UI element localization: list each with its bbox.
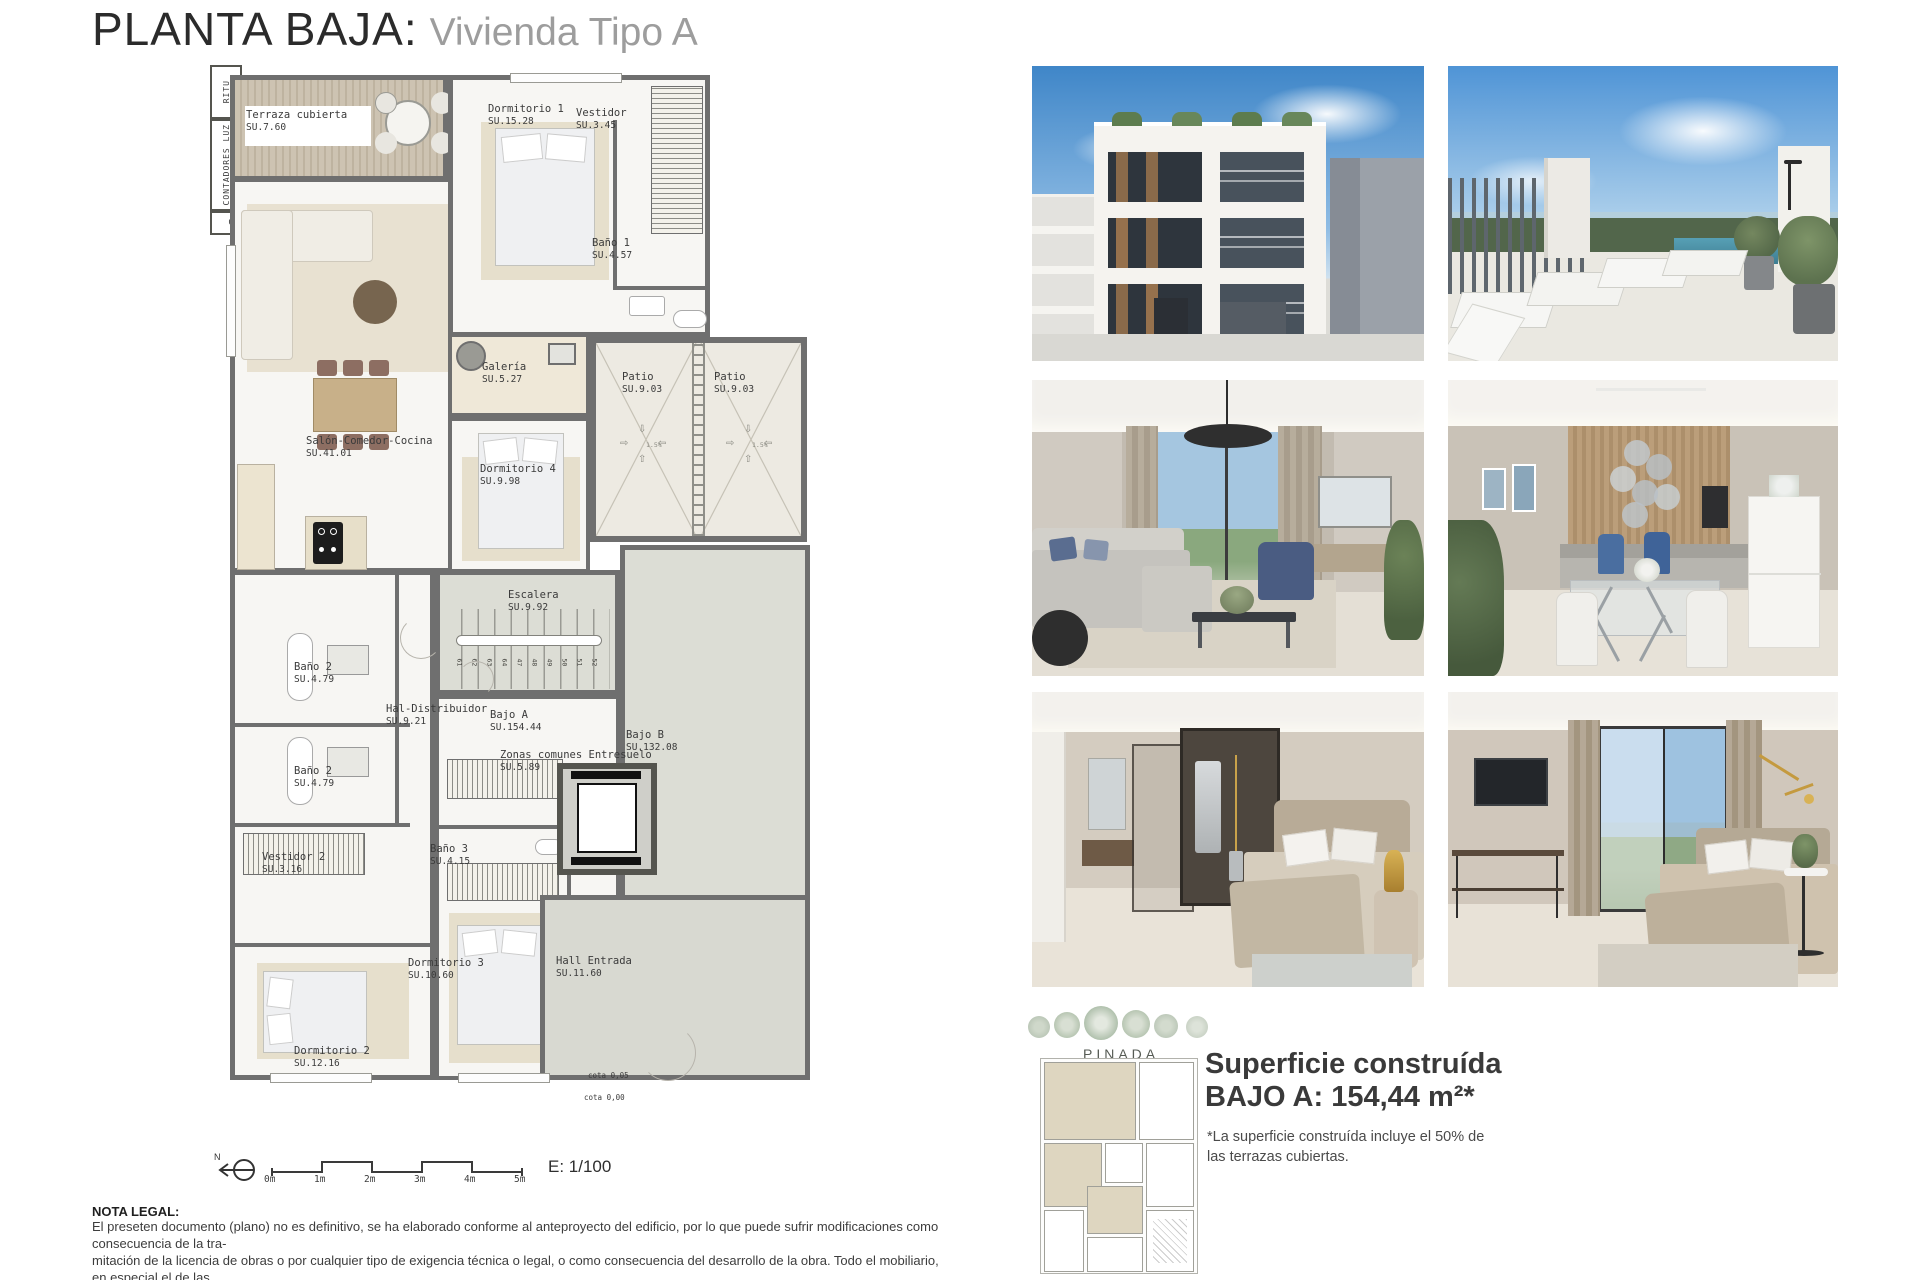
garage-door	[1220, 302, 1286, 338]
blue-armchair	[1258, 542, 1314, 600]
surface-heading: Superficie construída BAJO A: 154,44 m²*	[1205, 1048, 1502, 1115]
orchid	[1769, 475, 1799, 497]
room-label: Zonas comunes EntresueloSU.5.89	[500, 749, 652, 773]
scale-tick: 4m	[464, 1174, 475, 1185]
artwork	[1482, 468, 1506, 510]
room-label: Salón-Comedor-CocinaSU.41.01	[306, 435, 432, 459]
door	[1032, 732, 1066, 942]
console-shelf	[1452, 888, 1564, 891]
pillow	[1330, 828, 1377, 864]
plant	[1792, 834, 1818, 868]
surface-footnote: *La superficie construída incluye el 50%…	[1207, 1128, 1484, 1167]
hanging-clothes	[1195, 761, 1221, 853]
sun-lounger	[1662, 250, 1748, 276]
dorm3-bed	[457, 925, 545, 1045]
side-table	[1032, 610, 1088, 666]
room-label: Hall EntradaSU.11.60	[556, 955, 632, 979]
slope-arrow-icon: ⇩	[638, 425, 646, 435]
slope-arrow-icon: ⇧	[638, 455, 646, 465]
bathroom-mirror	[1088, 758, 1126, 830]
room-label: EscaleraSU.9.92	[508, 589, 559, 613]
street	[1032, 334, 1424, 361]
white-chair	[1686, 590, 1728, 668]
elevator-cab	[577, 783, 637, 853]
stair-handrail	[456, 635, 602, 646]
sheer-curtain	[1601, 729, 1663, 909]
window	[510, 73, 622, 83]
shower-head	[1784, 160, 1802, 164]
pinada-logo-ornament	[1028, 1004, 1218, 1044]
plan-patio-block: ⇩ ⇨ ⇦ ⇧ 1.5% ⇩ ⇨ ⇦ ⇧ 1.5%	[590, 337, 807, 542]
console-top	[1452, 850, 1564, 856]
window	[226, 245, 236, 357]
legal-heading: NOTA LEGAL:	[92, 1204, 942, 1219]
side-table-leg	[1802, 876, 1805, 952]
plant	[1778, 216, 1838, 286]
pendant-cord	[1226, 380, 1228, 430]
room-label: Terraza cubiertaSU.7.60	[246, 109, 347, 133]
room-label: Baño 2SU.4.79	[294, 765, 334, 789]
bano1-tub	[673, 310, 707, 328]
cota-high: cota 0,05	[588, 1071, 629, 1080]
room-label: PatioSU.9.03	[622, 371, 662, 395]
monstera-plant	[1448, 520, 1504, 676]
plant	[1384, 520, 1424, 640]
legal-line: mitación de la licencia de obras o por c…	[92, 1253, 942, 1280]
wall-tv	[1474, 758, 1548, 806]
chandelier	[1624, 440, 1650, 466]
bano1-sink	[629, 296, 665, 316]
pendant-lamp	[1184, 424, 1272, 448]
orchid-centerpiece	[1634, 558, 1660, 582]
chimney	[1544, 158, 1590, 258]
room-label: Dormitorio 4SU.9.98	[480, 463, 556, 487]
photo-dining-kitchen	[1448, 380, 1838, 676]
photo-building-facade	[1032, 66, 1424, 361]
main-building	[1094, 122, 1326, 334]
room-label: Vestidor 2SU.3.16	[262, 851, 325, 875]
scale-bar: N 0m 1m 2m 3m 4m 5m E: 1/100	[214, 1156, 634, 1196]
surface-line1: Superficie construída	[1205, 1048, 1502, 1081]
dining-table	[313, 378, 397, 432]
coffee-table	[353, 280, 397, 324]
scale-ratio: E: 1/100	[548, 1157, 611, 1177]
room-label: VestidorSU.3.45	[576, 107, 627, 131]
patio-slope-label: 1.5%	[752, 441, 768, 449]
console-legs	[1456, 856, 1458, 918]
blue-pillow	[1083, 539, 1109, 561]
photo-living-room	[1032, 380, 1424, 676]
ceiling	[1448, 692, 1838, 730]
patio-slope-label: 1.5%	[646, 441, 662, 449]
room-label: Dormitorio 3SU.10.60	[408, 957, 484, 981]
door-arc	[458, 661, 494, 697]
photo-rooftop-terrace-pool	[1448, 66, 1838, 361]
cota-low: cota 0,00	[584, 1093, 625, 1102]
cooktop	[313, 522, 343, 564]
room-label: Baño 1SU.4.57	[592, 237, 632, 261]
planter-pot	[1793, 284, 1835, 334]
room-label: Dormitorio 2SU.12.16	[294, 1045, 370, 1069]
coffee-table-legs	[1198, 622, 1202, 648]
rug	[1252, 954, 1412, 987]
room-label: Dormitorio 1SU.15.28	[488, 103, 564, 127]
floor-plan: ⇩ ⇨ ⇦ ⇧ 1.5% ⇩ ⇨ ⇦ ⇧ 1.5%	[210, 65, 810, 1110]
vestidor-wardrobe	[651, 86, 703, 234]
photo-bedroom-dressing	[1032, 692, 1424, 987]
gold-pendant	[1235, 755, 1237, 865]
neighbor-building-left	[1032, 194, 1098, 334]
north-compass-icon	[218, 1156, 262, 1186]
white-chair	[1556, 592, 1598, 666]
oven	[1702, 486, 1728, 528]
mirror	[1318, 476, 1392, 528]
dorm4-bed	[478, 433, 564, 549]
ceiling	[1032, 692, 1424, 732]
dorm2-bed	[263, 971, 367, 1053]
ceiling	[1448, 380, 1838, 426]
galeria-sink	[548, 343, 576, 365]
pillow	[1282, 829, 1330, 867]
slope-arrow-icon: ⇧	[744, 455, 752, 465]
photo-bedroom-window	[1448, 692, 1838, 987]
window-right-column	[1220, 152, 1304, 202]
surface-line2: BAJO A: 154,44 m²*	[1205, 1081, 1502, 1114]
mini-plan-thumbnail	[1040, 1058, 1198, 1274]
blue-chair	[1598, 534, 1624, 574]
brochure-page: PLANTA BAJA:Vivienda Tipo A	[0, 0, 1920, 1280]
slope-arrow-icon: ⇩	[744, 425, 752, 435]
page-title: PLANTA BAJA:Vivienda Tipo A	[92, 2, 698, 56]
room-label: Baño 2SU.4.79	[294, 661, 334, 685]
room-label: Baño 3SU.4.15	[430, 843, 470, 867]
roof-plants	[1112, 112, 1142, 126]
window	[270, 1073, 372, 1083]
room-label: Bajo ASU.154.44	[490, 709, 541, 733]
scale-tick: 0m	[264, 1174, 275, 1185]
scale-tick: 2m	[364, 1174, 375, 1185]
side-table-top	[1784, 868, 1828, 876]
page-title-sub: Vivienda Tipo A	[430, 11, 698, 54]
flowers	[1220, 586, 1254, 614]
kitchen-counter	[237, 464, 275, 570]
scale-tick: 3m	[414, 1174, 425, 1185]
cloud	[1618, 96, 1788, 166]
curtain-left	[1568, 720, 1600, 916]
scale-meander	[270, 1158, 524, 1176]
wood-slats	[1116, 152, 1128, 202]
legal-line: El preseten documento (plano) no es defi…	[92, 1219, 942, 1253]
door-arc	[640, 1025, 696, 1081]
blue-pillow	[1049, 536, 1078, 561]
slope-arrow-icon: ⇨	[726, 439, 734, 449]
dining-chairs-top	[317, 360, 337, 376]
page-title-main: PLANTA BAJA:	[92, 3, 418, 55]
coffee-table-top	[1192, 612, 1296, 622]
dorm1-bed	[495, 128, 595, 266]
window	[458, 1073, 550, 1083]
balcony-railings	[1220, 170, 1304, 172]
gold-lamp	[1384, 850, 1404, 892]
artwork	[1512, 464, 1536, 512]
room-label: PatioSU.9.03	[714, 371, 754, 395]
scale-tick: 5m	[514, 1174, 525, 1185]
white-cabinet	[1748, 496, 1820, 648]
plan-dorm4-block	[448, 417, 590, 573]
terrace-chairs	[375, 92, 397, 114]
planter-pot	[1744, 256, 1774, 290]
elevator	[557, 763, 657, 875]
legal-note: NOTA LEGAL: El preseten documento (plano…	[92, 1204, 942, 1280]
pillow	[1749, 838, 1794, 872]
room-label: GaleríaSU.5.27	[482, 361, 526, 385]
slope-arrow-icon: ⇨	[620, 439, 628, 449]
entrance-door	[1154, 298, 1188, 338]
room-label: Hal-DistribuidorSU.9.21	[386, 703, 487, 727]
door-arc	[400, 617, 442, 659]
vanity-cabinet	[1082, 840, 1134, 866]
sofa-side	[241, 210, 293, 360]
window-mullion	[1225, 432, 1228, 594]
rug	[1598, 944, 1798, 987]
pillow	[1704, 840, 1749, 875]
ceiling-light	[1596, 388, 1706, 391]
scale-tick: 1m	[314, 1174, 325, 1185]
patio-ladder	[692, 343, 705, 536]
